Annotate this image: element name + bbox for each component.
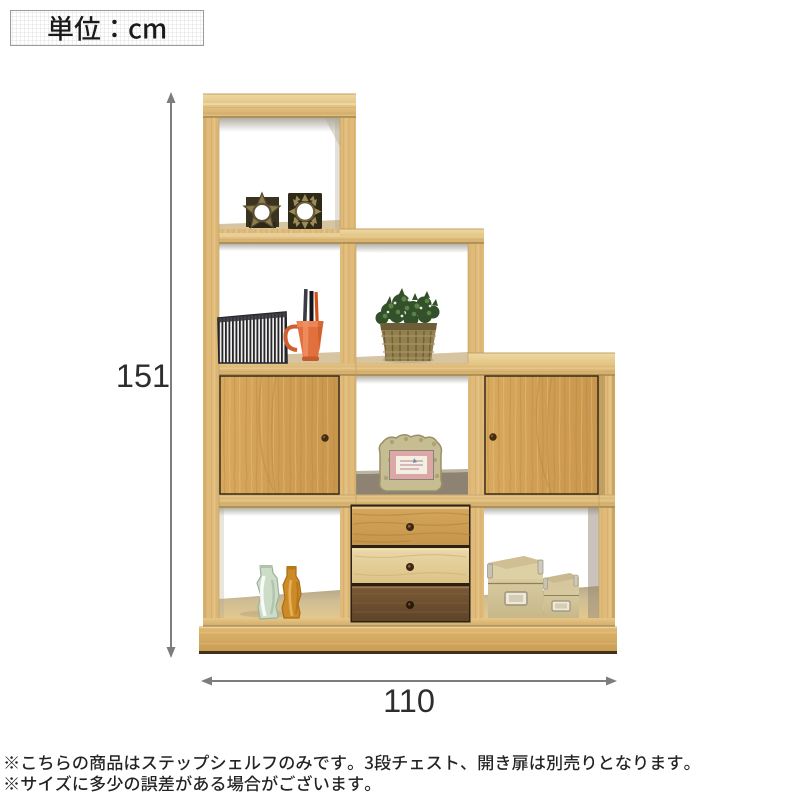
- svg-text:151: 151: [116, 358, 170, 394]
- svg-text:110: 110: [383, 683, 435, 719]
